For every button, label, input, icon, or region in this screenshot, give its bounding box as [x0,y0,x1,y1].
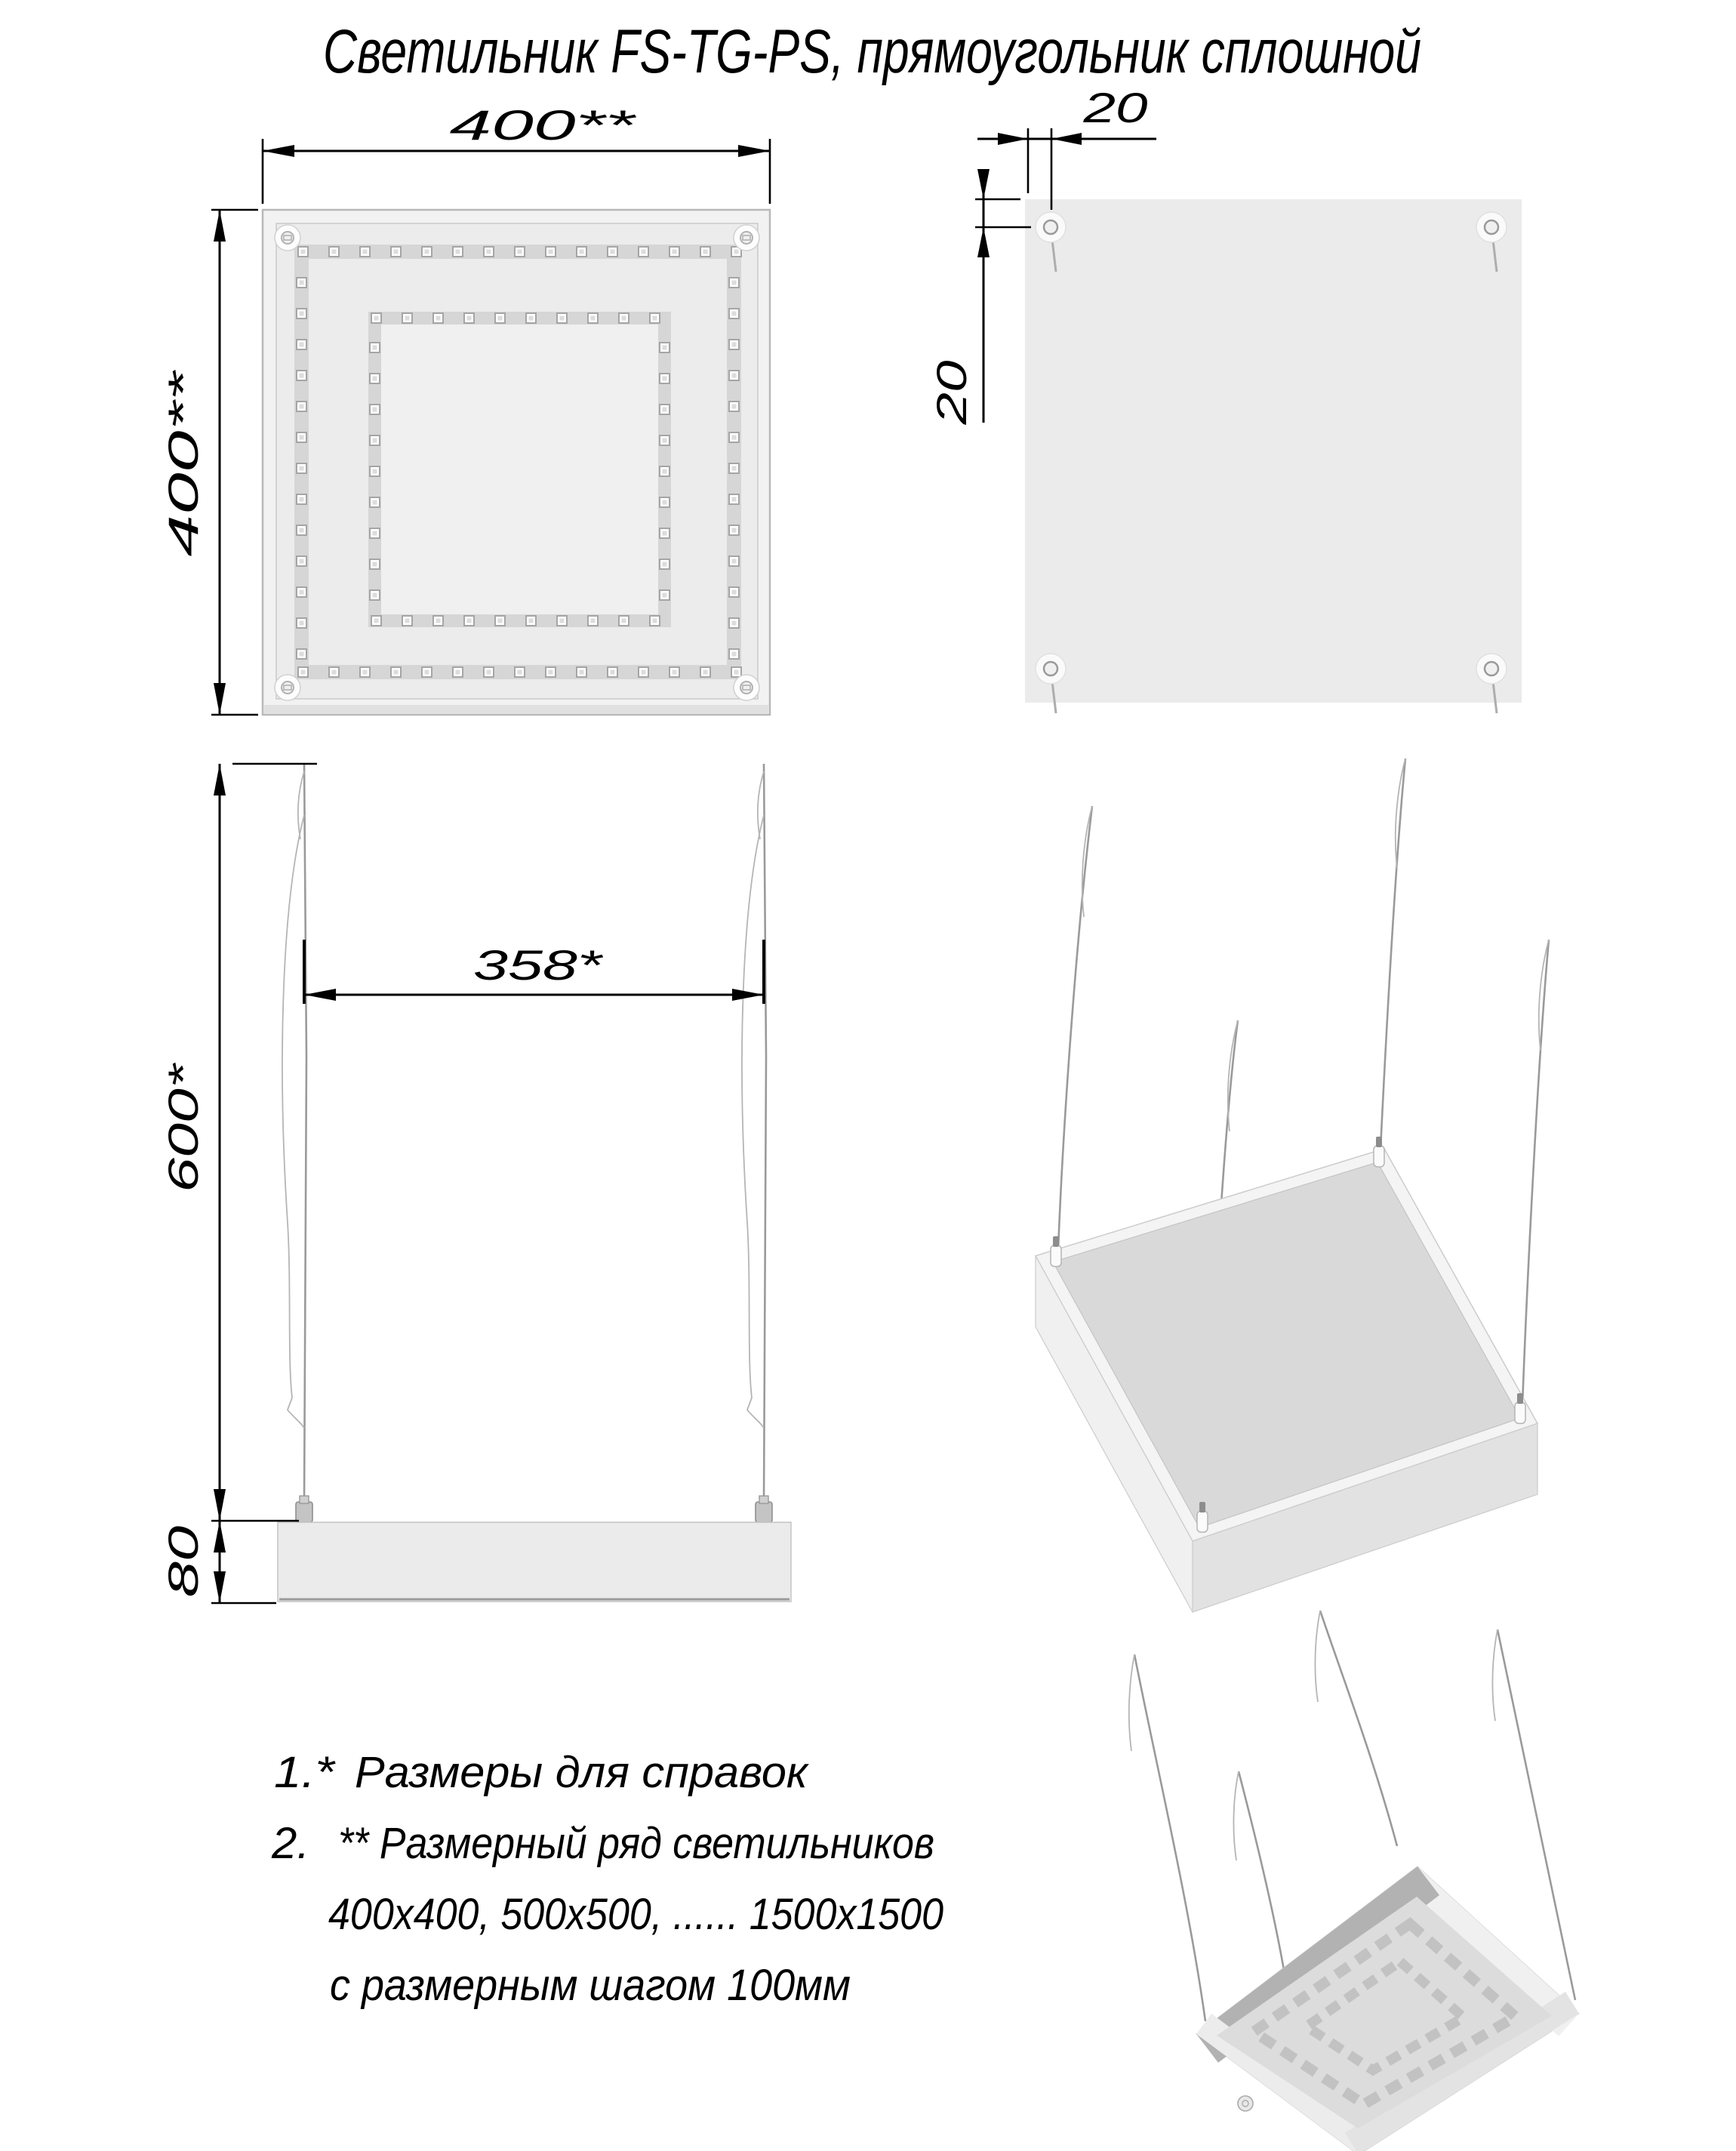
note-marker: 2. [271,1819,309,1868]
cable-gripper-collar [759,1496,768,1503]
dim-hole-offset-top: 20 [977,84,1156,210]
side-view [278,764,791,1602]
screw-cap [734,675,759,700]
dim-hole-offset-side-label: 20 [928,361,975,426]
drawing-title: Светильник FS-TG-PS, прямоугольник сплош… [323,17,1421,86]
iso-bottom-screw [1238,2096,1253,2111]
dim-suspension-length-label: 600* [159,1062,207,1192]
note-text: с размерным шагом 100мм [330,1961,851,2010]
cable-gripper [756,1502,772,1522]
led-row [298,247,741,257]
screw-cap [275,675,300,700]
iso-bottom-view [1129,1611,1579,2151]
dim-front-height-label: 400** [159,369,207,557]
dim-front-height: 400** [159,210,258,715]
dim-front-width-label: 400** [450,101,638,149]
iso-bottom-diffuser [1217,1897,1552,2128]
dim-cable-spacing: 358* [304,940,764,1004]
luminaire-body-side [278,1522,791,1602]
screw-cap [275,225,300,251]
front-view [263,210,770,715]
back-panel [1025,199,1522,703]
dim-body-height-label: 80 [159,1526,207,1598]
dim-hole-offset-side: 20 [928,169,1031,426]
note-text: 400х400, 500х500, ...... 1500х1500 [328,1890,943,1939]
note-text: ** Размерный ряд светильников [338,1819,934,1868]
dim-front-width: 400** [263,101,770,204]
screw-cap [734,225,759,251]
cable-gripper-collar [300,1496,309,1503]
back-view [1025,199,1522,713]
dim-hole-offset-top-label: 20 [1082,84,1147,131]
drawing-sheet: Светильник FS-TG-PS, прямоугольник сплош… [0,0,1736,2151]
led-row [370,343,380,600]
note-text: Размеры для справок [355,1748,810,1797]
dim-suspension-length: 600* [159,764,317,1521]
led-row [660,343,669,600]
dim-cable-spacing-label: 358* [473,941,604,989]
led-row [298,667,741,677]
front-panel-center [381,325,658,614]
drawing-canvas: Светильник FS-TG-PS, прямоугольник сплош… [0,0,1736,2151]
notes-block: 1.* Размеры для справок 2. ** Размерный … [271,1748,943,2010]
suspension-cable-left [282,764,306,1502]
front-panel-bottom-shade [264,705,768,713]
cable-gripper [296,1502,312,1522]
iso-top-view [1036,759,1549,1612]
note-marker: 1.* [274,1748,337,1797]
suspension-cable-right [742,764,766,1502]
